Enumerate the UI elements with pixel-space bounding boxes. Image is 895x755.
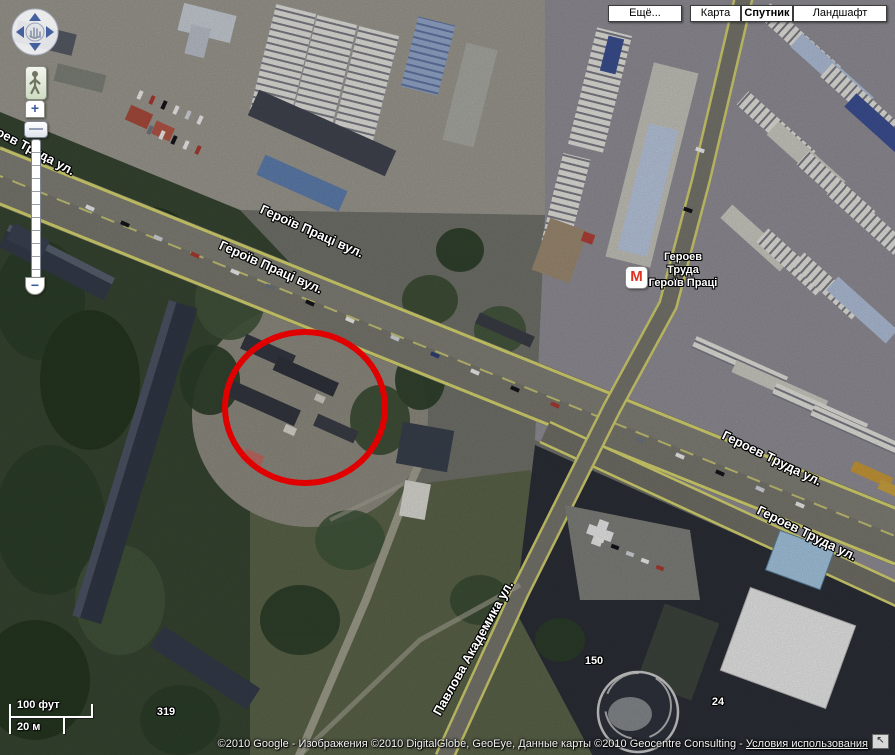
google-maps-satellite-view: Героев Труда ул. Героїв Праці вул. Герої… bbox=[0, 0, 895, 755]
image-grain bbox=[0, 0, 895, 755]
copyright-text: ©2010 Google - Изображения ©2010 Digital… bbox=[218, 738, 746, 750]
satellite-imagery[interactable] bbox=[0, 0, 895, 755]
highlight-circle-annotation bbox=[222, 329, 388, 486]
terms-of-use-link[interactable]: Условия использования bbox=[746, 738, 868, 750]
nw-arrow-icon[interactable]: ↖ bbox=[872, 734, 889, 749]
pegman-icon bbox=[31, 71, 40, 93]
scale-bar bbox=[6, 694, 106, 739]
pan-control bbox=[10, 7, 60, 57]
zoom-in-button[interactable]: + bbox=[25, 100, 45, 118]
metro-station-icon[interactable]: M bbox=[625, 266, 648, 289]
map-type-button-terrain[interactable]: Ландшафт bbox=[793, 5, 887, 22]
more-button[interactable]: Ещё... bbox=[608, 5, 682, 22]
pegman-control[interactable] bbox=[25, 66, 47, 100]
zoom-slider-track[interactable] bbox=[31, 139, 41, 279]
map-type-button-satellite[interactable]: Спутник bbox=[741, 5, 793, 22]
zoom-slider-handle[interactable] bbox=[24, 121, 48, 138]
map-type-button-map[interactable]: Карта bbox=[690, 5, 741, 22]
attribution-bar: ©2010 Google - Изображения ©2010 Digital… bbox=[218, 738, 868, 750]
